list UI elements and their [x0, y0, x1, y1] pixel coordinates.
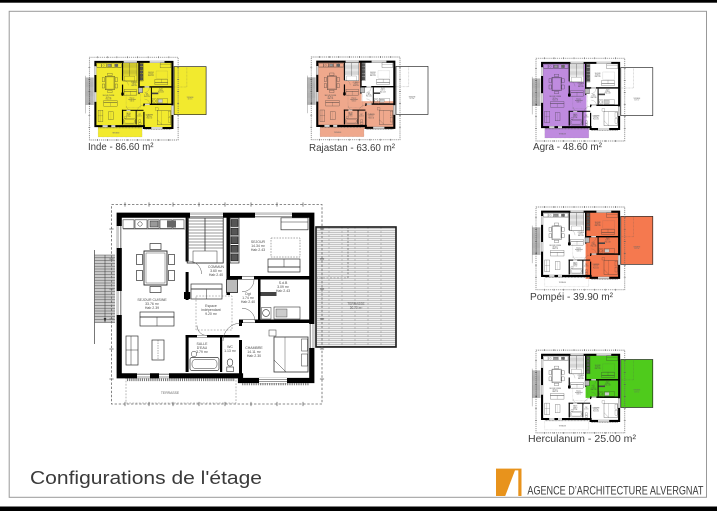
svg-text:Pompéi - 39.90 m²: Pompéi - 39.90 m² [530, 292, 614, 303]
svg-text:Rajastan - 63.60 m²: Rajastan - 63.60 m² [309, 143, 396, 154]
svg-text:Inde - 86.60 m²: Inde - 86.60 m² [88, 142, 154, 153]
svg-text:Configurations de l'étage: Configurations de l'étage [30, 467, 262, 488]
svg-text:AGENCE D’ARCHITECTURE ALVERGNA: AGENCE D’ARCHITECTURE ALVERGNAT [527, 484, 704, 498]
svg-text:Herculanum - 25.00 m²: Herculanum - 25.00 m² [528, 434, 637, 445]
svg-text:Agra - 48.60 m²: Agra - 48.60 m² [533, 142, 603, 153]
